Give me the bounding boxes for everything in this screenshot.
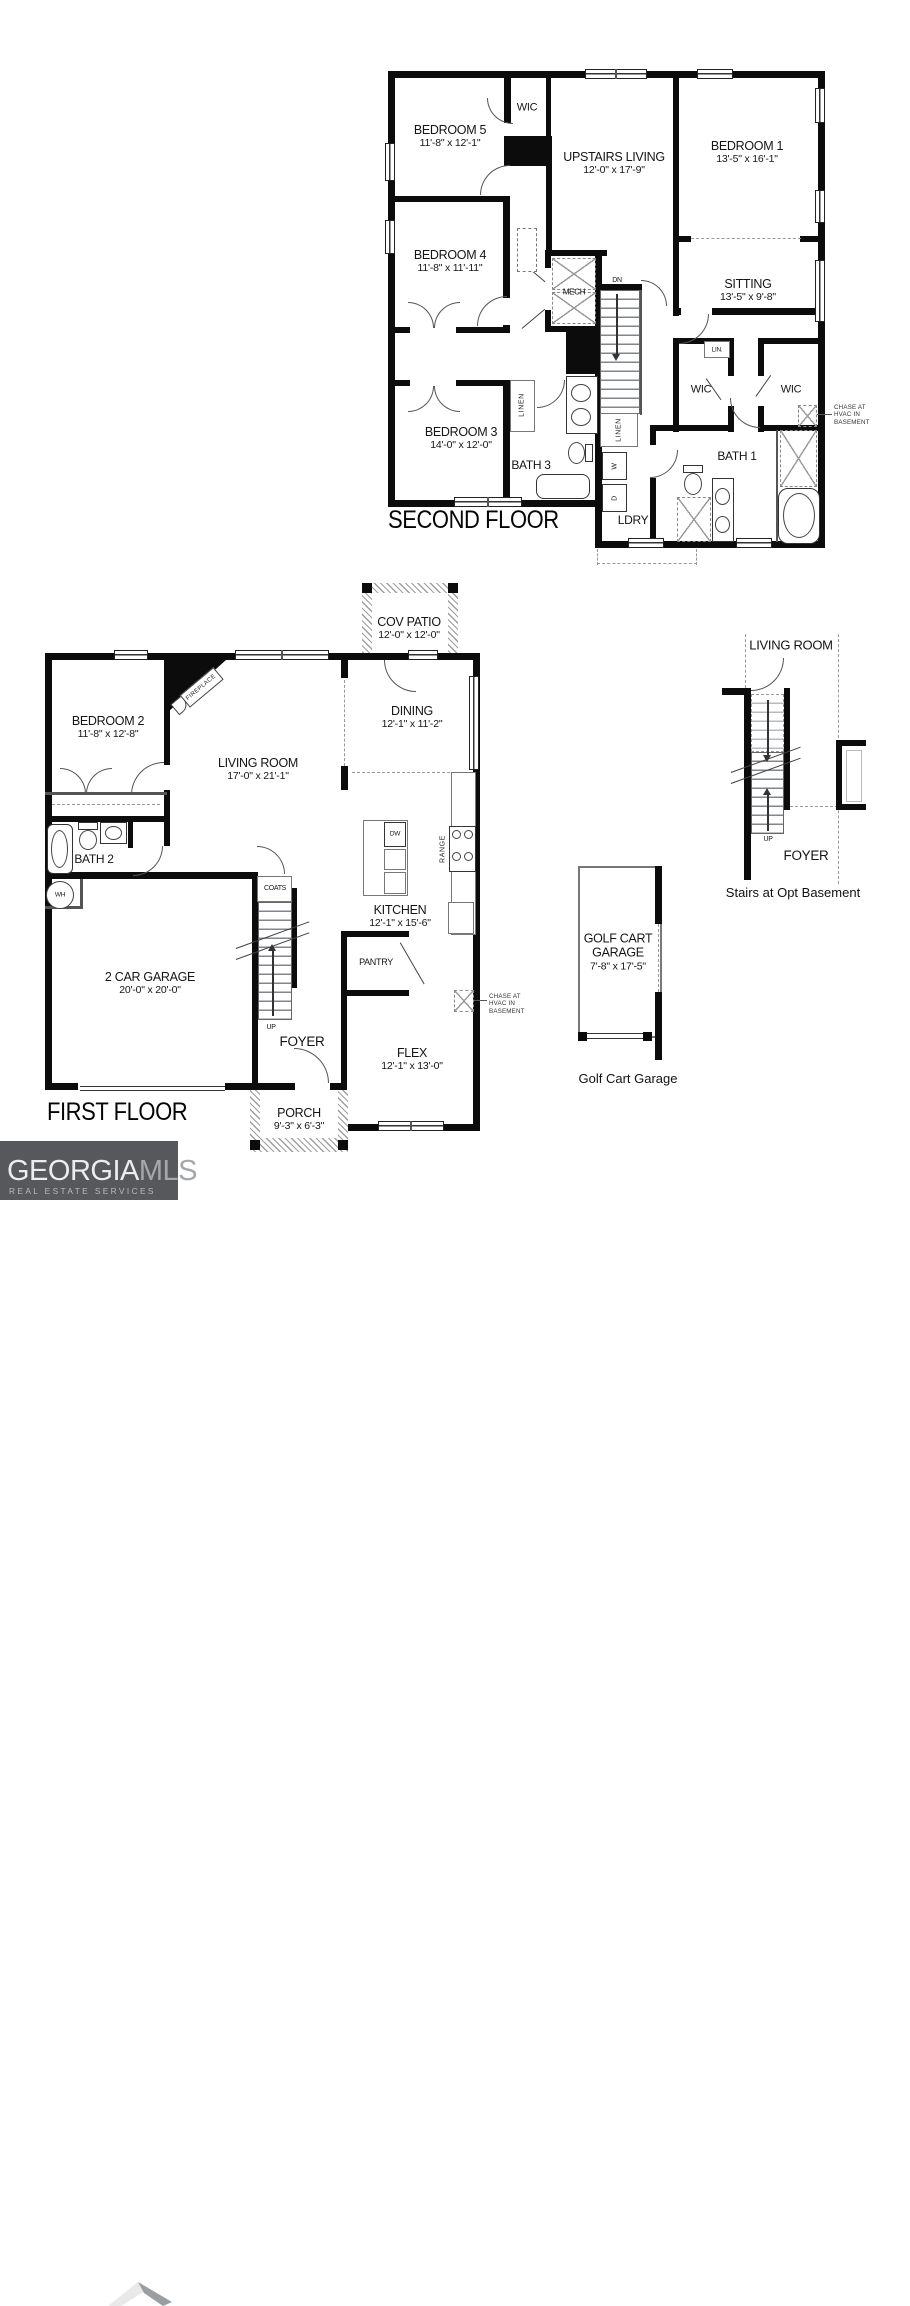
- room-label-upstairs-living: UPSTAIRS LIVING12'-0" x 17'-9": [563, 150, 665, 176]
- room-dims: 11'-8" x 12'-8": [72, 728, 144, 740]
- chase-note-line: BASEMENT: [489, 1008, 525, 1015]
- door-arc: [434, 302, 460, 328]
- chase-block: [504, 136, 552, 166]
- window: [114, 650, 148, 660]
- door-jamb: [578, 1032, 587, 1041]
- leader-line: [817, 414, 832, 415]
- porch-post: [338, 1140, 348, 1150]
- stair-label-up: UP: [763, 836, 772, 844]
- room-dims: 9'-3" x 6'-3": [274, 1120, 324, 1132]
- chase-note-line: CHASE AT: [834, 404, 870, 411]
- room-label-living-room: LIVING ROOM17'-0" x 21'-1": [218, 756, 298, 782]
- patio-post: [362, 583, 372, 593]
- closet-label-linen: LINEN: [519, 393, 526, 417]
- room-dims: 12'-1" x 11'-2": [382, 718, 443, 730]
- cabinet: [384, 849, 406, 870]
- wall: [673, 71, 679, 316]
- wall: [650, 425, 734, 431]
- chase-mark: [798, 405, 817, 427]
- floor-plan-sheet: CHASE AT HVAC IN BASEMENT BEDROOM 511'-8…: [0, 0, 910, 1200]
- door-leaf: [522, 309, 546, 329]
- room-name: BEDROOM 3: [425, 425, 497, 439]
- window: [628, 538, 664, 548]
- wall-stub: [341, 766, 348, 790]
- wall: [545, 250, 551, 268]
- door-arc: [487, 98, 513, 124]
- room-dims: 11'-8" x 11'-11": [414, 262, 486, 274]
- window-mullion: [410, 1121, 412, 1131]
- wall: [712, 308, 822, 315]
- toilet-tank: [683, 465, 703, 473]
- porch-post: [250, 1140, 260, 1150]
- chase-note-line: HVAC IN: [834, 411, 870, 418]
- room-name: COV PATIO: [377, 615, 441, 629]
- door-leaf: [755, 375, 771, 397]
- shower: [677, 497, 711, 542]
- wall: [252, 1083, 295, 1090]
- chase-note-line: CHASE AT: [489, 993, 525, 1000]
- stair-label-dn: DN: [612, 277, 622, 285]
- second-floor-title: SECOND FLOOR: [388, 506, 559, 535]
- closet-label-lin: LIN.: [712, 346, 723, 353]
- room-name: BEDROOM 1: [711, 139, 783, 153]
- window: [385, 143, 395, 181]
- guide-dash: [790, 806, 838, 807]
- room-label-bedroom4: BEDROOM 411'-8" x 11'-11": [414, 248, 486, 274]
- wall: [456, 327, 510, 333]
- wall: [673, 338, 679, 432]
- wall: [546, 166, 552, 256]
- stairs-down: [600, 290, 640, 414]
- room-name: BEDROOM 4: [414, 248, 486, 262]
- room-label-wic-left: WIC: [691, 384, 711, 397]
- room-label-pantry: PANTRY: [359, 957, 393, 967]
- wall-ghost: [846, 750, 862, 802]
- room-label-garage: 2 CAR GARAGE20'-0" x 20'-0": [105, 970, 195, 996]
- wall: [456, 380, 510, 386]
- toilet: [684, 473, 702, 495]
- room-name: 2 CAR GARAGE: [105, 970, 195, 984]
- room-label-porch: PORCH9'-3" x 6'-3": [274, 1106, 324, 1132]
- guide-dash: [696, 549, 697, 565]
- washer-label: W: [612, 462, 619, 469]
- door-arc: [751, 658, 784, 691]
- door-arc: [86, 768, 112, 794]
- tub-basin: [51, 830, 68, 868]
- stair-arrow: [767, 795, 769, 831]
- door-arc: [730, 398, 760, 428]
- chase-note-line: HVAC IN: [489, 1000, 525, 1007]
- chase-block: [566, 326, 598, 374]
- closet-label-linen: LINEN: [616, 418, 623, 442]
- bathtub: [536, 474, 590, 499]
- wall: [341, 931, 347, 996]
- room-dims: 12'-1" x 15'-6": [369, 917, 431, 929]
- wall: [45, 1083, 78, 1090]
- room-label-ldry: LDRY: [618, 514, 649, 528]
- room-label-bath1: BATH 1: [717, 450, 756, 464]
- room-dims: 17'-0" x 21'-1": [218, 770, 298, 782]
- door-leaf: [399, 942, 424, 984]
- sink: [715, 488, 730, 505]
- guide-dash: [597, 563, 697, 564]
- hvac-unit: [552, 292, 596, 324]
- chase-note: CHASE AT HVAC IN BASEMENT: [834, 404, 870, 426]
- room-name: LIVING ROOM: [218, 756, 298, 770]
- wall: [546, 71, 551, 138]
- detail-caption: Stairs at Opt Basement: [726, 885, 860, 900]
- door-arc: [60, 768, 86, 794]
- door-arc: [408, 302, 434, 328]
- sink: [571, 408, 591, 426]
- wall: [45, 872, 257, 879]
- window: [815, 260, 825, 322]
- wall: [758, 338, 822, 344]
- room-label-mech: MECH: [563, 287, 585, 296]
- chase-mark: [454, 990, 474, 1012]
- stair-rail: [640, 290, 642, 415]
- burner: [452, 830, 461, 839]
- room-name: UPSTAIRS LIVING: [563, 150, 665, 164]
- detail-label-foyer: FOYER: [783, 848, 828, 864]
- toilet: [79, 830, 97, 850]
- wall: [341, 931, 409, 937]
- stair-arrow: [272, 950, 274, 1016]
- wall: [784, 688, 790, 810]
- room-dims: 14'-0" x 12'-0": [425, 439, 497, 451]
- door-arc: [294, 1048, 329, 1083]
- room-dims: 20'-0" x 20'-0": [105, 984, 195, 996]
- room-label-bath2: BATH 2: [74, 853, 113, 867]
- wall: [388, 327, 410, 333]
- stair-label-up: UP: [266, 1024, 275, 1032]
- stair-arrow: [767, 700, 769, 756]
- door-arc: [477, 296, 507, 326]
- wall: [836, 804, 866, 810]
- coats-label: COATS: [264, 885, 286, 893]
- wall: [503, 380, 510, 502]
- room-dims: 11'-8" x 12'-1": [414, 137, 486, 149]
- door-arc: [384, 660, 416, 692]
- stair-arrowhead: [612, 354, 620, 361]
- burner: [464, 830, 473, 839]
- toilet-tank: [585, 444, 593, 462]
- patio-post: [448, 583, 458, 593]
- toilet-tank: [78, 822, 98, 830]
- sink: [105, 826, 122, 840]
- window: [815, 190, 825, 223]
- hvac-unit: [552, 258, 596, 290]
- room-label-dining: DINING12'-1" x 11'-2": [382, 704, 443, 730]
- wall: [128, 816, 133, 848]
- door-arc: [641, 280, 667, 306]
- room-name: DINING: [391, 704, 433, 718]
- window-mullion: [281, 650, 283, 660]
- chase-note: CHASE AT HVAC IN BASEMENT: [489, 993, 525, 1015]
- shower: [780, 430, 817, 487]
- room-label-wic-right: WIC: [781, 384, 801, 397]
- sink: [571, 384, 591, 402]
- stairs-up: [258, 902, 292, 1020]
- dw-label: DW: [390, 830, 400, 837]
- garage-door: [586, 1033, 644, 1039]
- room-label-cov-patio: COV PATIO12'-0" x 12'-0": [377, 615, 441, 641]
- window: [815, 88, 825, 123]
- room-dims: 7'-8" x 17'-5": [584, 960, 653, 972]
- closet-shelf: [52, 804, 160, 805]
- wall: [836, 740, 842, 810]
- stair-arrowhead: [763, 755, 771, 762]
- window: [408, 650, 438, 660]
- wall: [758, 338, 764, 376]
- room-name: BEDROOM 2: [72, 714, 144, 728]
- detail-label-living-room: LIVING ROOM: [749, 639, 832, 654]
- room-dims: 13'-5" x 9'-8": [720, 291, 776, 303]
- window: [469, 676, 479, 770]
- dryer-label: D: [612, 495, 619, 501]
- wall-stub: [673, 236, 691, 242]
- burner: [464, 852, 473, 861]
- wall: [722, 688, 746, 695]
- logo-tagline: REAL ESTATE SERVICES: [9, 1186, 156, 1196]
- wh-label: WH: [55, 891, 65, 898]
- wall: [503, 196, 510, 298]
- logo-wordmark: GEORGIAMLS: [7, 1155, 197, 1188]
- door-arc: [257, 846, 285, 874]
- stair-arrowhead: [268, 944, 276, 951]
- room-name: SITTING: [724, 277, 771, 291]
- sink: [715, 516, 730, 533]
- roof-icon: [108, 2280, 178, 2306]
- room-label-bedroom5: BEDROOM 511'-8" x 12'-1": [414, 123, 486, 149]
- room-label-bedroom2: BEDROOM 211'-8" x 12'-8": [72, 714, 144, 740]
- detail-caption: Golf Cart Garage: [579, 1071, 678, 1086]
- window: [385, 220, 395, 254]
- wall-stub: [800, 236, 822, 242]
- wall: [341, 990, 409, 996]
- wall: [655, 866, 662, 924]
- stair-arrow: [616, 294, 618, 354]
- room-label-bath3: BATH 3: [511, 459, 550, 473]
- door-arc: [650, 450, 678, 478]
- door-jamb: [643, 1032, 652, 1041]
- room-label-wic: WIC: [517, 102, 537, 115]
- room-name: BEDROOM 5: [414, 123, 486, 137]
- room-name: FLEX: [397, 1046, 427, 1060]
- door-arc: [434, 386, 460, 412]
- toilet: [568, 442, 585, 464]
- room-dims: 12'-0" x 17'-9": [563, 164, 665, 176]
- wall-stub: [341, 660, 348, 678]
- room-name: GOLF CART: [584, 932, 653, 946]
- chase-dashed: [517, 228, 537, 272]
- window: [736, 538, 772, 548]
- range-label: RANGE: [440, 835, 447, 863]
- garage-door: [80, 1086, 225, 1091]
- wall: [164, 796, 170, 846]
- room-label-foyer: FOYER: [279, 1034, 324, 1050]
- leader-line: [474, 1000, 487, 1001]
- room-dims: 12'-1" x 13'-0": [381, 1060, 443, 1072]
- guide-dash: [745, 634, 746, 688]
- wall: [388, 71, 395, 507]
- room-name: GARAGE: [584, 946, 653, 960]
- room-name: KITCHEN: [374, 903, 427, 917]
- chase-note-line: BASEMENT: [834, 419, 870, 426]
- burner: [452, 852, 461, 861]
- stair-arrowhead: [763, 788, 771, 795]
- door-arc: [480, 165, 510, 195]
- logo-georgia: GEORGIA: [7, 1155, 139, 1187]
- wall-dash: [658, 924, 659, 992]
- wall: [744, 688, 751, 880]
- ceiling-break: [344, 680, 345, 766]
- cabinet: [384, 872, 406, 894]
- room-label-kitchen: KITCHEN12'-1" x 15'-6": [369, 903, 431, 929]
- wall: [655, 992, 662, 1060]
- window: [697, 69, 733, 79]
- room-dims: 13'-5" x 16'-1": [711, 153, 783, 165]
- wall-thin: [80, 879, 83, 909]
- room-label-bedroom1: BEDROOM 113'-5" x 16'-1": [711, 139, 783, 165]
- logo-mls: MLS: [139, 1155, 197, 1187]
- room-label-sitting: SITTING13'-5" x 9'-8": [720, 277, 776, 303]
- door-arc: [131, 762, 164, 795]
- room-name: PORCH: [277, 1106, 321, 1120]
- door-arc: [537, 380, 565, 408]
- room-label-bedroom3: BEDROOM 314'-0" x 12'-0": [425, 425, 497, 451]
- refrigerator: [448, 902, 474, 934]
- room-label-flex: FLEX12'-1" x 13'-0": [381, 1046, 443, 1072]
- room-label-golf-cart-garage: GOLF CART GARAGE 7'-8" x 17'-5": [584, 932, 653, 973]
- first-floor-title: FIRST FLOOR: [47, 1098, 187, 1127]
- room-dims: 12'-0" x 12'-0": [377, 629, 441, 641]
- window-mullion: [615, 69, 617, 79]
- cased-opening: [691, 238, 801, 239]
- wall: [388, 196, 508, 202]
- soaking-tub: [783, 493, 815, 538]
- door-arc: [408, 386, 434, 412]
- wall: [388, 380, 410, 386]
